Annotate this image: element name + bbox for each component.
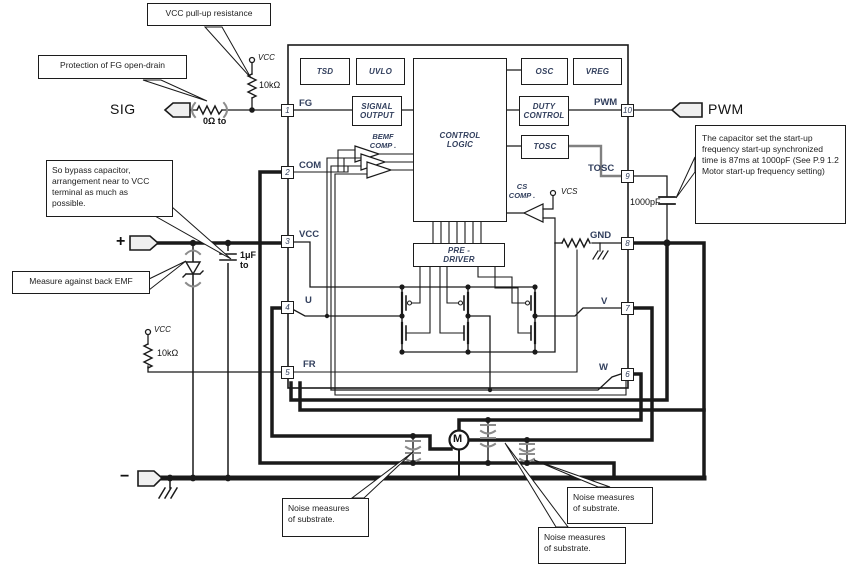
application-circuit-diagram: TSD UVLO OSC VREG SIGNAL OUTPUT DUTY CON… [0,0,851,569]
callout-fg-protection: Protection of FG open-drain [38,55,187,79]
r-series-value: 0Ω to [203,117,226,127]
callout-noise-1: Noise measures of substrate. [282,498,369,537]
pin-label-v: V [601,296,607,307]
block-uvlo: UVLO [356,58,405,85]
plus-terminal-label: + [116,233,125,251]
pin-7-v: 7 [621,302,634,315]
r-pullup-value: 10kΩ [259,81,280,91]
block-tosc: TOSC [521,135,569,159]
block-tsd: TSD [300,58,350,85]
bemf-comp-label: BEMF COMP . [362,133,404,150]
c-bypass-value: 1μF to [240,251,256,271]
minus-terminal-label: − [120,468,129,486]
pin-6-w: 6 [621,368,634,381]
pin-10-pwm: 10 [621,104,634,117]
pin-4-u: 4 [281,301,294,314]
block-signal-output: SIGNAL OUTPUT [352,96,402,126]
pin-label-w: W [599,362,608,373]
block-osc: OSC [521,58,568,85]
pin-label-u: U [305,295,312,306]
callout-back-emf: Measure against back EMF [12,271,150,294]
pin-1-fg: 1 [281,104,294,117]
pin-label-pwm: PWM [594,97,617,108]
callout-bypass: So bypass capacitor, arrangement near to… [46,160,173,217]
block-duty-control: DUTY CONTROL [519,96,569,126]
pin-label-gnd: GND [590,230,611,241]
pin-label-tosc: TOSC [588,163,614,174]
block-control-logic: CONTROL LOGIC [413,58,507,222]
pin-label-fr: FR [303,359,316,370]
pin-8-gnd: 8 [621,237,634,250]
vcc-pullup-label: VCC [258,54,275,63]
pin-2-com: 2 [281,166,294,179]
cs-comp-label: CS COMP . [505,183,539,200]
sig-terminal-label: SIG [110,102,136,117]
vcs-label: VCS [561,188,577,197]
motor-label: M [453,433,462,445]
pin-5-fr: 5 [281,366,294,379]
callout-startup: The capacitor set the start-up frequency… [695,125,846,224]
block-pre-driver: PRE - DRIVER [413,243,505,267]
callout-noise-2: Noise measures of substrate. [538,527,626,564]
r-fr-value: 10kΩ [157,349,178,359]
pin-label-com: COM [299,160,321,171]
c-tosc-value: 1000pF [630,198,661,208]
pin-label-vcc: VCC [299,229,319,240]
pin-3-vcc: 3 [281,235,294,248]
pin-9-tosc: 9 [621,170,634,183]
callout-vcc-pullup: VCC pull-up resistance [147,3,271,26]
pin-label-fg: FG [299,98,312,109]
block-vreg: VREG [573,58,622,85]
pwm-terminal-label: PWM [708,102,744,117]
vcc-fr-label: VCC [154,326,171,335]
callout-noise-3: Noise measures of substrate. [567,487,653,524]
